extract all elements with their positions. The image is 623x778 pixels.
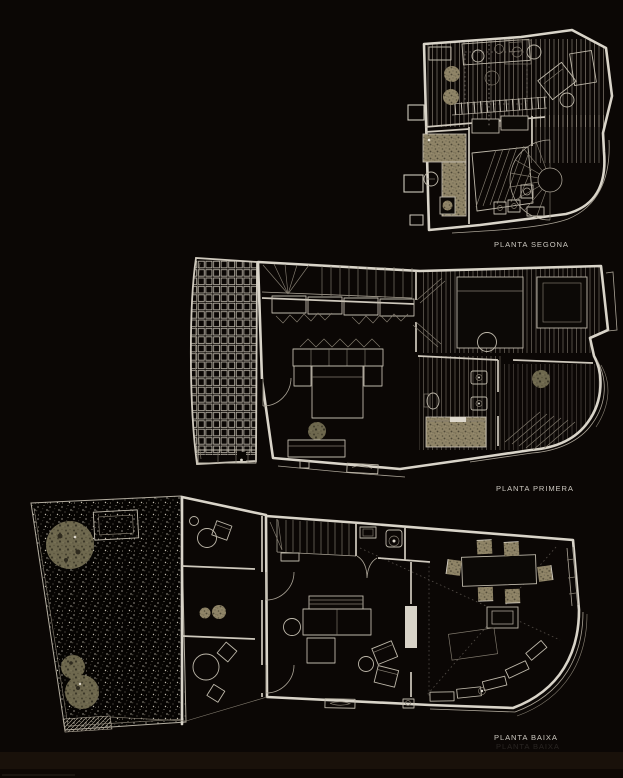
stool [443,201,453,211]
tree [46,521,94,569]
armchair [444,66,460,82]
floor-label-planta-primera: PLANTA PRIMERA [496,484,574,493]
floor-label-planta-baixa: PLANTA BAIXA [494,733,558,742]
armchair [443,89,459,105]
wardrobe [537,277,587,328]
dining-chair [446,559,462,576]
scanned-plan-page: PLANTA SEGONA [0,0,623,778]
dining-chair [537,565,553,582]
closet [472,119,499,133]
faucet [428,139,431,142]
dining-table [462,555,537,587]
wall-pilaster [408,105,424,120]
tree [65,675,99,709]
scan-edge-band [0,752,623,769]
plant [308,422,326,440]
kitchen-counter [423,134,466,162]
stool [200,608,211,619]
scan-edge-dark [0,769,623,778]
stool [212,605,226,619]
dining-chair [504,542,520,557]
sofa-back [309,596,363,609]
dining-chair [478,587,493,602]
plant [532,370,550,388]
partition-wall [405,606,417,648]
floor-label-ghost: PLANTA BAIXA [496,742,560,751]
floor-plans-drawing: PLANTA SEGONA [0,0,623,778]
floor-label-planta-segona: PLANTA SEGONA [494,240,569,249]
wall-pilaster [404,175,423,192]
tiled-terrace [190,258,258,464]
dining-chair [505,589,520,604]
bed [457,277,523,348]
closet [501,116,528,130]
section-wall-hatch [63,716,112,732]
dining-chair [477,540,493,555]
wall-pilaster [410,215,423,225]
